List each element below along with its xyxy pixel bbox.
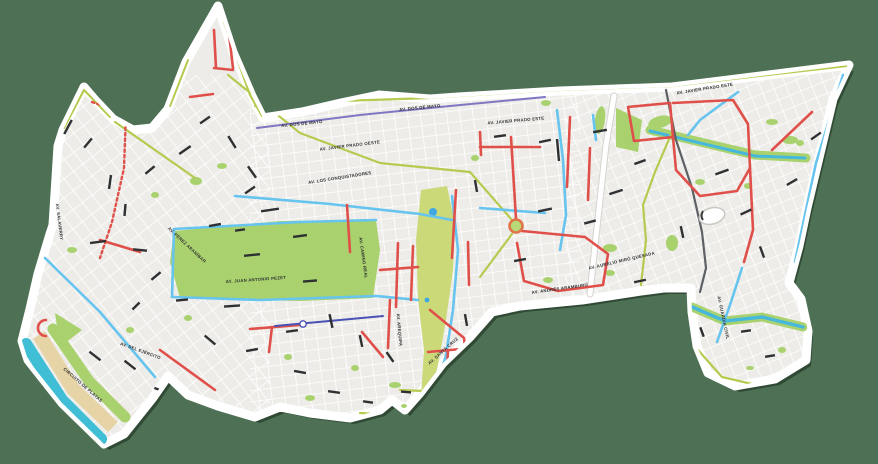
- street-label-dash: [286, 330, 298, 332]
- street-label-dash: [494, 135, 506, 137]
- street-label-dash: [224, 305, 240, 306]
- street-label-dash: [133, 249, 147, 250]
- roundabout: [510, 220, 523, 233]
- street-label-dash: [551, 310, 561, 312]
- street-label-dash: [765, 355, 775, 357]
- street-label-dash: [741, 330, 751, 331]
- map-screenshot: AV. DOS DE MAYOAV. DOS DE MAYOAV. JAVIER…: [0, 0, 878, 464]
- street-label-dash: [303, 280, 317, 281]
- street-label-dash: [581, 330, 591, 332]
- district-map[interactable]: AV. DOS DE MAYOAV. DOS DE MAYOAV. JAVIER…: [0, 0, 878, 464]
- street-label-dash: [235, 229, 245, 230]
- street-label-dash: [328, 391, 340, 393]
- street-label-dash: [244, 254, 260, 256]
- street-label-dash: [401, 392, 411, 393]
- street-label-dash: [448, 381, 451, 390]
- route-badge: [300, 321, 306, 327]
- park-pond-small: [425, 298, 430, 303]
- street-label-dash: [124, 204, 125, 216]
- street-label-dash: [644, 309, 656, 312]
- street-label-dash: [176, 299, 188, 300]
- street-label-dash: [363, 401, 373, 402]
